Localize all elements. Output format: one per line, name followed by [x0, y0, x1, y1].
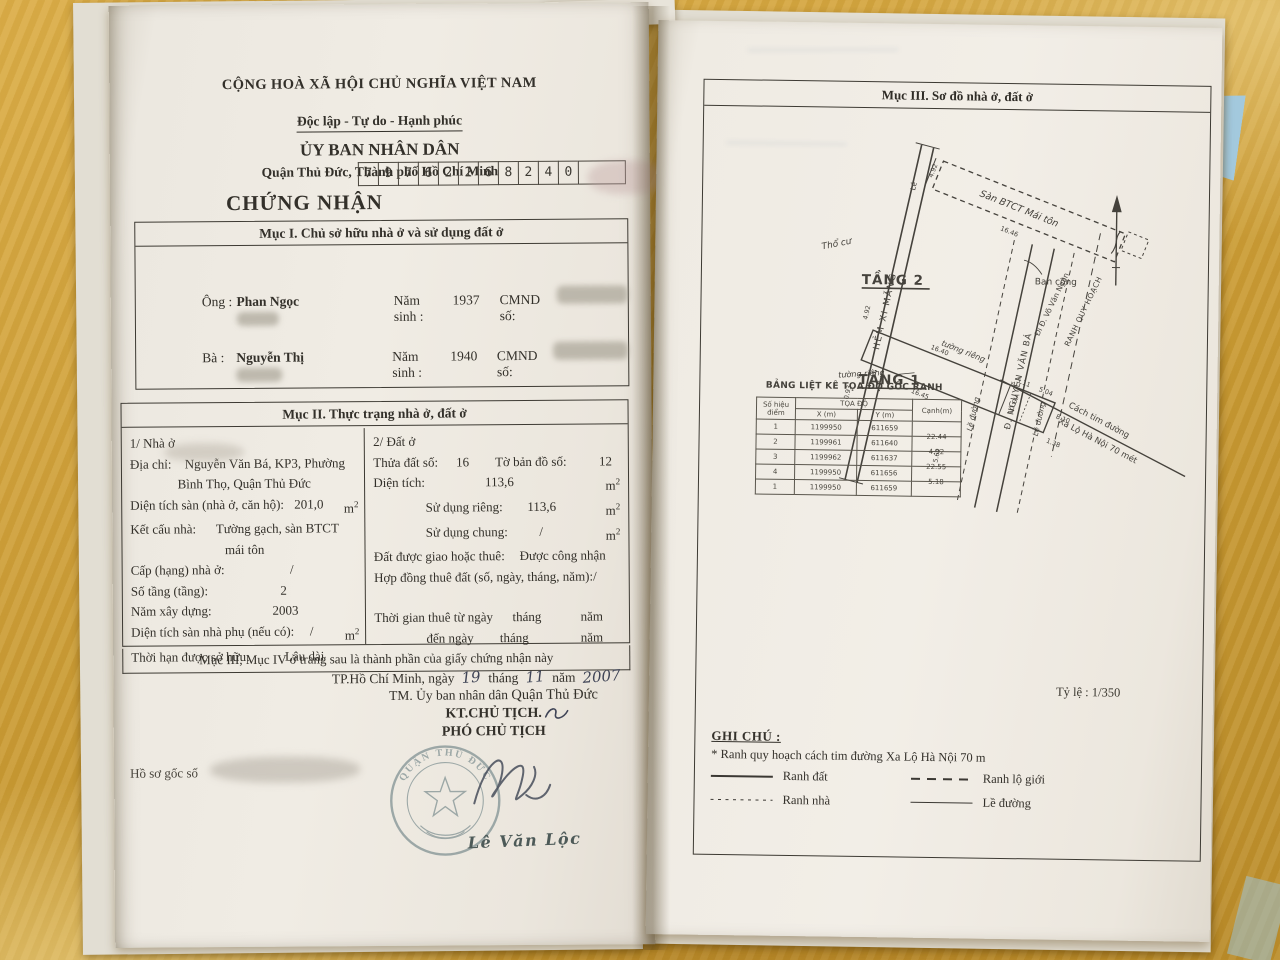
owner2-id-redacted — [553, 341, 628, 360]
house-grade-label: Cấp (hạng) nhà ở: — [131, 560, 225, 581]
date-line: TP.Hồ Chí Minh, ngày 19 tháng 11 năm 200… — [113, 667, 653, 689]
land-area-label: Diện tích: — [373, 473, 425, 498]
land-granted-value: Được công nhận — [520, 546, 606, 567]
certificate-left-page: CỘNG HOÀ XÃ HỘI CHỦ NGHĨA VIỆT NAM Độc l… — [109, 2, 656, 948]
sidewalk-label: Lề đường — [1031, 401, 1048, 437]
owner1-birth-label: Năm sinh : — [394, 293, 443, 325]
thin-line-sample — [911, 802, 973, 804]
house-structure-value1: Tường gạch, sàn BTCT — [216, 519, 339, 540]
house-grade-value: / — [290, 560, 294, 581]
sidewalk-label: Lề đường — [965, 396, 982, 432]
serial-digit: 9 — [378, 162, 398, 186]
initial-scribble — [542, 703, 572, 725]
date-city: TP.Hồ Chí Minh — [332, 671, 422, 687]
serial-digit: 2 — [458, 161, 478, 185]
owner1-id-label: CMND số: — [500, 292, 549, 324]
owner2-birth-year: 1940 — [450, 348, 483, 364]
land-map-label: Tờ bản đồ số: — [495, 451, 567, 472]
serial-number-boxes: 7 9 7 6 2 2 6 8 2 4 0 — [358, 160, 626, 186]
redaction-smudge — [164, 443, 244, 462]
land-title: 2/ Đất ở — [373, 432, 415, 453]
land-type-label: Thổ cư — [821, 235, 854, 252]
land-plot-label: Thửa đất số: — [373, 452, 438, 473]
legend-item-ranh-nha: Ranh nhà — [710, 792, 910, 810]
bleed-through — [748, 48, 898, 52]
section-2-header: Mục II. Thực trạng nhà ở, đất ở — [121, 400, 627, 428]
blue-paper-edge — [1227, 876, 1280, 960]
signature-block: TM. Ủy ban nhân dân Quận Thủ Đức KT.CHỦ … — [363, 686, 623, 741]
house-year-label: Năm xây dựng: — [131, 602, 212, 623]
serial-digit: 0 — [558, 161, 578, 185]
owner2-birth-label: Năm sinh : — [392, 349, 440, 381]
owner-row-2: Bà : Nguyễn Thị Năm sinh : 1940 CMND số: — [136, 341, 628, 382]
land-contract-label: Hợp đồng thuê đất (số, ngày, tháng, năm)… — [374, 567, 593, 589]
legend-item-le-duong: Lề đường — [910, 795, 1130, 813]
house-address-label: Địa chỉ: — [130, 454, 172, 475]
sign-district: Quận Thủ Đức — [511, 686, 598, 703]
land-area-value: 113,6 — [485, 472, 514, 497]
legend-item-ranh-dat: Ranh đất — [711, 768, 911, 786]
archive-note: Hồ sơ gốc số — [130, 765, 198, 781]
land-contract-value: / — [593, 566, 597, 587]
serial-digit: 2 — [518, 161, 538, 185]
scale-label: Tỷ lệ : — [1056, 685, 1089, 699]
section-1-box: Mục I. Chủ sở hữu nhà ở và sử dụng đất ở… — [134, 218, 629, 389]
dotted-line-sample — [711, 799, 773, 801]
house-structure-value2: mái tôn — [225, 540, 265, 561]
section-3-box: Mục III. Sơ đồ nhà ở, đất ở HẺM XI MĂNG … — [693, 79, 1212, 862]
land-shared-label: Sử dụng chung: — [426, 522, 508, 547]
house-year-value: 2003 — [272, 601, 298, 622]
north-arrow-icon — [1111, 197, 1121, 285]
col-point: Số hiệu điểm — [756, 397, 795, 420]
land-granted-label: Đất được giao hoặc thuê: — [374, 547, 505, 568]
signature-ink — [466, 745, 557, 826]
unit-m2: m2 — [345, 621, 360, 646]
serial-digit: 7 — [398, 162, 418, 186]
serial-digit: 4 — [538, 161, 558, 185]
house-floor-area-label: Diện tích sàn (nhà ở, căn hộ): — [130, 494, 284, 520]
sign-kt-chu-tich: KT.CHỦ TỊCH. — [364, 705, 624, 723]
scale-value: 1/350 — [1092, 685, 1121, 699]
dim-label: 5.04 — [1038, 385, 1054, 398]
house-aux-label: Diện tích sàn nhà phụ (nếu có): — [131, 621, 294, 647]
house-address-value2: Bình Thọ, Quận Thủ Đức — [177, 473, 310, 494]
unit-m2: m2 — [605, 471, 620, 496]
land-private-value: 113,6 — [527, 497, 556, 522]
house-storeys-value: 2 — [280, 580, 287, 601]
solid-line-sample — [711, 774, 773, 777]
house-column: 1/ Nhà ở Địa chỉ:Nguyễn Văn Bá, KP3, Phư… — [122, 428, 367, 646]
owner2-name: Nguyễn Thị — [236, 349, 332, 382]
date-ngay-label: , ngày — [421, 670, 454, 685]
land-map-value: 12 — [599, 451, 612, 472]
national-motto-line2: Độc lập - Tự do - Hạnh phúc — [297, 112, 462, 132]
section-2-box: Mục II. Thực trạng nhà ở, đất ở 1/ Nhà ở… — [120, 399, 630, 647]
house-floor-area-value: 201,0 — [294, 494, 323, 519]
faded-smudge — [210, 756, 360, 783]
section-1-header: Mục I. Chủ sở hữu nhà ở và sử dụng đất ở — [135, 219, 627, 246]
sign-tm: TM. Ủy ban nhân dân — [389, 687, 508, 703]
legend: GHI CHÚ : * Ranh quy hoạch cách tim đườn… — [710, 728, 1131, 813]
land-lease-from-month: tháng — [512, 607, 541, 628]
scale-note: Tỷ lệ : 1/350 — [1056, 685, 1120, 701]
legend-note: * Ranh quy hoạch cách tim đường Xa Lộ Hà… — [711, 747, 1131, 768]
date-day-handwritten: 19 — [457, 667, 485, 687]
coordinate-table: Số hiệu điểm TỌA ĐỘ Cạnh(m) X (m) Y (m) … — [755, 397, 962, 498]
owner1-birth-year: 1937 — [453, 292, 486, 308]
legend-item-ranh-lo-gioi: Ranh lộ giới — [911, 771, 1131, 789]
serial-digit: 6 — [478, 161, 498, 185]
national-motto-line1: CỘNG HOÀ XÃ HỘI CHỦ NGHĨA VIỆT NAM — [109, 74, 649, 95]
house-aux-value: / — [310, 621, 314, 646]
land-plot-value: 16 — [456, 452, 469, 473]
owner1-name: Phan Ngọc — [236, 293, 334, 326]
le-label: Lề — [909, 181, 919, 191]
sign-pho-chu-tich: PHÓ CHỦ TỊCH — [364, 723, 624, 741]
land-lease-from-year: năm — [581, 607, 604, 628]
serial-digit: 7 — [358, 162, 378, 186]
house-storeys-label: Số tầng (tầng): — [131, 581, 208, 602]
issuer-name: ỦY BAN NHÂN DÂN — [110, 138, 650, 162]
date-year-handwritten: 2007 — [578, 666, 625, 687]
col-edge: Cạnh(m) — [912, 399, 961, 422]
col-y: Y (m) — [857, 409, 912, 421]
floor2-label: TẦNG 2 — [862, 269, 924, 289]
owner2-label: Bà : — [202, 350, 236, 366]
owner-row-1: Ông : Phan Ngọc Năm sinh : 1937 CMND số: — [136, 285, 628, 326]
land-shared-value: / — [539, 522, 543, 547]
date-nam-label: năm — [552, 670, 575, 685]
dim-label: 16.46 — [999, 224, 1019, 238]
stamp-star-icon — [425, 777, 465, 815]
land-column: 2/ Đất ở Thửa đất số:16Tờ bản đồ số:12 D… — [365, 426, 629, 644]
col-x: X (m) — [795, 409, 857, 421]
house-structure-label: Kết cấu nhà: — [130, 520, 196, 541]
land-lease-from-label: Thời gian thuê từ ngày — [374, 608, 493, 629]
owner1-id-redacted — [557, 285, 628, 303]
unit-m2: m2 — [606, 496, 621, 521]
redaction-smudge — [588, 160, 666, 195]
certificate-right-page: Mục III. Sơ đồ nhà ở, đất ở HẺM XI MĂNG … — [646, 20, 1223, 942]
land-private-label: Sử dụng riêng: — [425, 497, 502, 522]
serial-digit: 2 — [438, 161, 458, 185]
dashed-line-sample — [911, 777, 973, 780]
unit-m2: m2 — [344, 494, 359, 519]
date-month-handwritten: 11 — [521, 667, 549, 687]
dim-label: 4.92 — [861, 305, 872, 321]
unit-m2: m2 — [606, 521, 621, 546]
serial-digit: 6 — [418, 162, 438, 186]
owner1-label: Ông : — [202, 294, 237, 310]
owner2-id-label: CMND số: — [497, 348, 546, 380]
serial-digit: 8 — [498, 161, 518, 185]
document-title: CHỨNG NHẬN — [110, 189, 499, 217]
date-thang-label: tháng — [488, 670, 518, 685]
